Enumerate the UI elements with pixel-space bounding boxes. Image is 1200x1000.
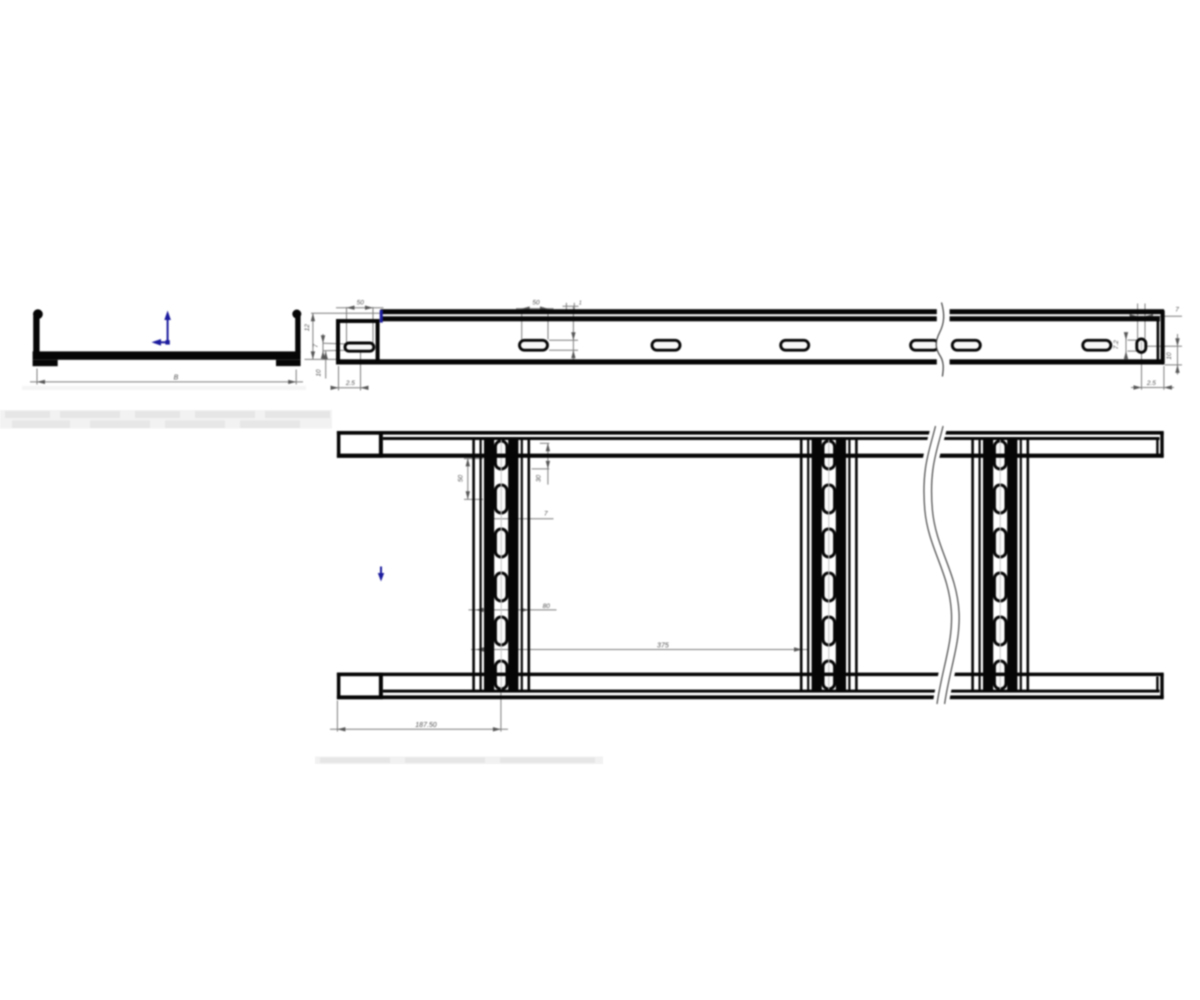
svg-text:80: 80	[543, 603, 551, 610]
svg-text:375: 375	[657, 642, 669, 649]
svg-text:12: 12	[304, 324, 311, 332]
svg-text:50: 50	[357, 299, 365, 306]
svg-text:1: 1	[579, 301, 582, 307]
svg-text:7.2: 7.2	[1113, 340, 1120, 349]
svg-text:B: B	[174, 375, 179, 382]
svg-text:7: 7	[544, 510, 548, 517]
svg-text:10: 10	[315, 369, 322, 377]
svg-text:187.50: 187.50	[415, 722, 437, 729]
svg-text:7: 7	[312, 344, 319, 348]
svg-text:50: 50	[458, 475, 465, 483]
svg-text:2.5: 2.5	[345, 380, 355, 387]
svg-text:50: 50	[532, 300, 540, 307]
svg-text:2.5: 2.5	[1146, 380, 1156, 387]
svg-text:30: 30	[535, 475, 542, 483]
svg-text:10: 10	[1166, 352, 1173, 360]
svg-text:7: 7	[1175, 306, 1179, 313]
